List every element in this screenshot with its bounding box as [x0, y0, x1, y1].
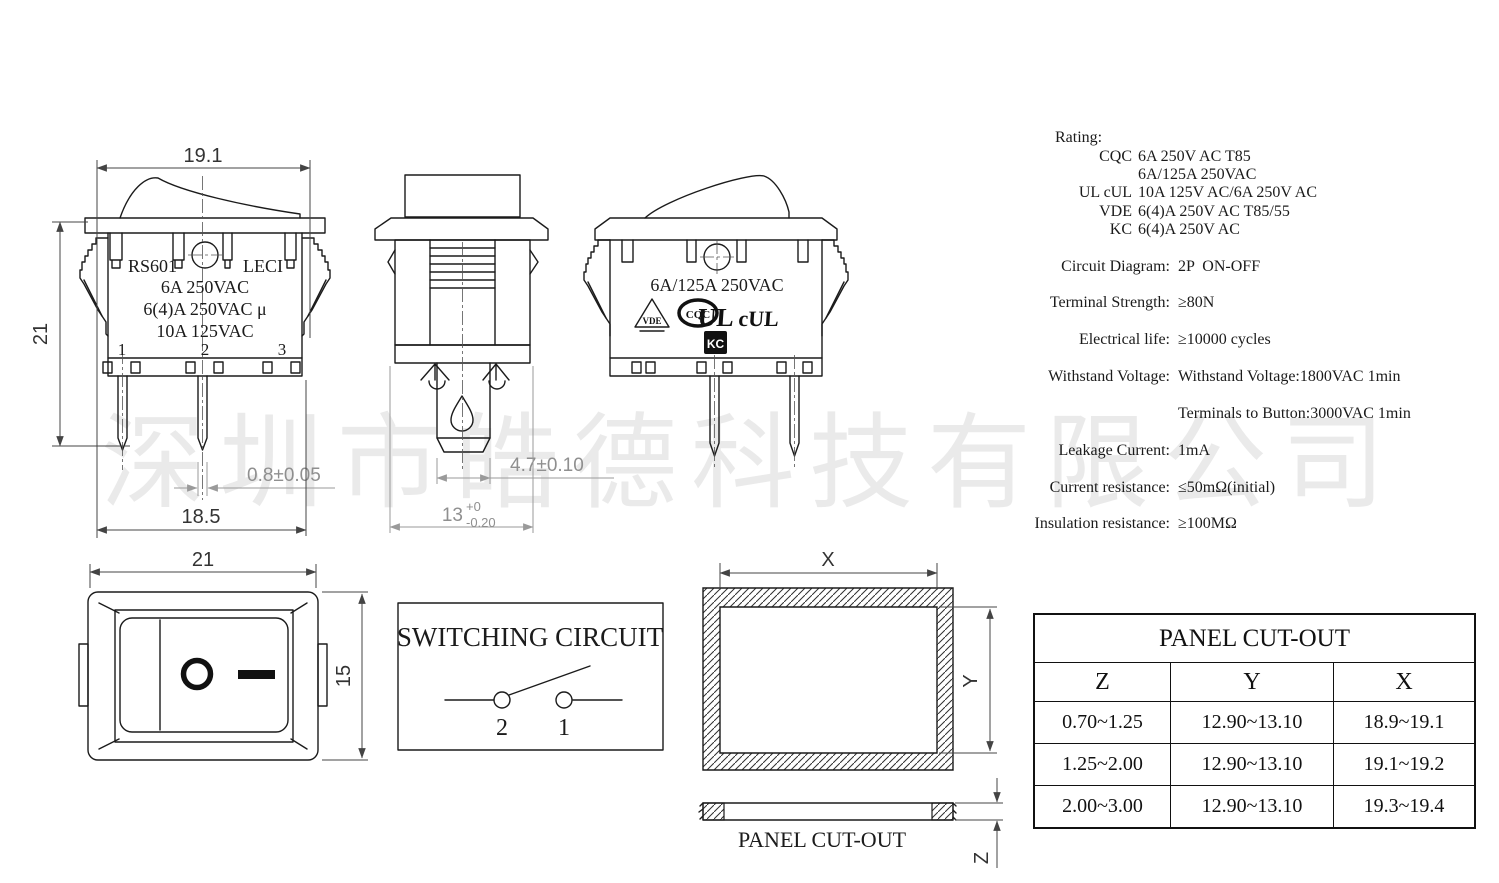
- dim-15-label: 15: [333, 665, 355, 687]
- svg-text:cUL: cUL: [738, 306, 780, 331]
- vde-logo: VDE: [635, 299, 669, 331]
- dim-13-label: 13: [442, 505, 463, 526]
- terminal-2-label: 2: [201, 340, 210, 359]
- spec-row: Leakage Current:1mA: [1020, 442, 1210, 460]
- cell-x: 19.3~19.4: [1334, 786, 1476, 829]
- dim-front-height: 21: [30, 222, 130, 446]
- spec-row: Terminal Strength:≥80N: [1020, 294, 1214, 312]
- spec-row: Withstand Voltage:Withstand Voltage:1800…: [1020, 368, 1400, 386]
- cell-y: 12.90~13.10: [1171, 702, 1334, 744]
- spec-label: Circuit Diagram:: [1020, 258, 1170, 276]
- rating-value: 6A 250V AC T85: [1138, 148, 1251, 165]
- spec-row: Circuit Diagram:2P ON-OFF: [1020, 258, 1260, 276]
- spec-value: 2P ON-OFF: [1178, 258, 1260, 275]
- top-view-drawing: [79, 592, 327, 760]
- table-row: 1.25~2.00 12.90~13.10 19.1~19.2: [1034, 744, 1475, 786]
- rating-value: 10A 125V AC/6A 250V AC: [1138, 184, 1317, 201]
- spec-row: Current resistance:≤50mΩ(initial): [1020, 479, 1275, 497]
- spec-label: Withstand Voltage:: [1020, 368, 1170, 386]
- spec-label: Current resistance:: [1020, 479, 1170, 497]
- model-marking: RS601: [128, 256, 177, 276]
- rating-marking-3: 10A 125VAC: [156, 321, 253, 341]
- on-symbol: [238, 670, 275, 679]
- rating-agency: VDE: [1020, 203, 1132, 221]
- dim-top-view-width: 21: [90, 549, 316, 588]
- terminal-3-label: 3: [278, 340, 287, 359]
- spec-row: Terminals to Button:3000VAC 1min: [1020, 405, 1411, 423]
- rating-row: KC6(4)A 250V AC: [1020, 221, 1240, 239]
- cul-logo: cUL: [738, 306, 780, 331]
- switching-circuit-box: SWITCHING CIRCUIT 2 1: [397, 603, 664, 750]
- rating-value: 6A/125A 250VAC: [1138, 166, 1256, 183]
- cell-x: 18.9~19.1: [1334, 702, 1476, 744]
- circuit-label-2: 2: [496, 715, 508, 741]
- rating-agency: UL cUL: [1020, 184, 1132, 202]
- rating-marking-2: 6(4)A 250VAC μ: [143, 299, 266, 320]
- dim-top-view-height: 15: [322, 592, 368, 760]
- panel-cutout-hole: [703, 588, 953, 770]
- panel-cutout-drawing: X Y Z PANEL CUT-OUT: [699, 549, 1003, 868]
- back-rating-marking: 6A/125A 250VAC: [650, 275, 783, 295]
- panel-section: [703, 803, 953, 820]
- dim-13-tol-lower: -0.20: [466, 515, 496, 530]
- side-view-drawing: [375, 175, 548, 472]
- cell-y: 12.90~13.10: [1171, 744, 1334, 786]
- dim-z-label: Z: [971, 852, 993, 864]
- table-header-row: Z Y X: [1034, 663, 1475, 702]
- dim-19-1-label: 19.1: [184, 145, 223, 167]
- panel-cutout-caption: PANEL CUT-OUT: [738, 827, 907, 852]
- spec-label: Electrical life:: [1020, 331, 1170, 349]
- rating-marking-1: 6A 250VAC: [161, 277, 249, 297]
- kc-logo: KC: [704, 331, 727, 354]
- switch-lever: [509, 666, 590, 695]
- column-header-z: Z: [1034, 663, 1171, 702]
- spec-row: Electrical life:≥10000 cycles: [1020, 331, 1271, 349]
- rating-value: 6(4)A 250V AC: [1138, 221, 1240, 238]
- table-title-row: PANEL CUT-OUT: [1034, 614, 1475, 663]
- circuit-terminal-1: [556, 692, 572, 708]
- dim-21-label: 21: [30, 323, 52, 345]
- circuit-terminal-2: [494, 692, 510, 708]
- spec-value: ≥100MΩ: [1178, 515, 1237, 532]
- table-row: 0.70~1.25 12.90~13.10 18.9~19.1: [1034, 702, 1475, 744]
- circuit-label-1: 1: [558, 715, 570, 741]
- dim-terminal-width: 4.7±0.10: [437, 455, 614, 484]
- dim-body-depth: 13 +0 -0.20: [390, 366, 533, 533]
- spec-value: Withstand Voltage:1800VAC 1min: [1178, 368, 1400, 385]
- rating-agency: CQC: [1020, 148, 1132, 166]
- dim-cutout-z: Z: [955, 778, 1003, 868]
- svg-text:UL: UL: [697, 303, 735, 332]
- cell-z: 1.25~2.00: [1034, 744, 1171, 786]
- brand-marking: LECI: [243, 256, 283, 276]
- dim-4-7-label: 4.7±0.10: [510, 455, 584, 476]
- svg-text:VDE: VDE: [642, 316, 661, 326]
- dim-21-top-label: 21: [192, 549, 214, 571]
- cell-z: 2.00~3.00: [1034, 786, 1171, 829]
- spec-label: Insulation resistance:: [1020, 515, 1170, 533]
- switching-circuit-title: SWITCHING CIRCUIT: [397, 622, 664, 652]
- cell-z: 0.70~1.25: [1034, 702, 1171, 744]
- svg-text:KC: KC: [707, 337, 725, 351]
- spec-value: Terminals to Button:3000VAC 1min: [1178, 405, 1411, 422]
- terminal-hole: [451, 396, 473, 431]
- spec-label: Terminal Strength:: [1020, 294, 1170, 312]
- spec-value: 1mA: [1178, 442, 1210, 459]
- spec-label: Leakage Current:: [1020, 442, 1170, 460]
- spec-row: Insulation resistance:≥100MΩ: [1020, 515, 1237, 533]
- rating-row: 6A/125A 250VAC: [1020, 166, 1256, 184]
- dim-x-label: X: [821, 549, 834, 571]
- table-title: PANEL CUT-OUT: [1034, 614, 1475, 663]
- column-header-x: X: [1334, 663, 1476, 702]
- dim-y-label: Y: [960, 674, 982, 687]
- off-symbol: [184, 661, 211, 688]
- spec-value: ≥10000 cycles: [1178, 331, 1271, 348]
- rating-value: 6(4)A 250V AC T85/55: [1138, 203, 1290, 220]
- dim-pin-width: 0.8±0.05: [174, 462, 335, 496]
- rating-row: CQC6A 250V AC T85: [1020, 148, 1251, 166]
- cell-x: 19.1~19.2: [1334, 744, 1476, 786]
- rating-row: VDE6(4)A 250V AC T85/55: [1020, 203, 1290, 221]
- dim-0-8-label: 0.8±0.05: [247, 465, 321, 486]
- cell-y: 12.90~13.10: [1171, 786, 1334, 829]
- dim-18-5-label: 18.5: [182, 506, 221, 528]
- dim-13-tol-upper: +0: [466, 499, 481, 514]
- table-row: 2.00~3.00 12.90~13.10 19.3~19.4: [1034, 786, 1475, 829]
- rating-agency: KC: [1020, 221, 1132, 239]
- spec-value: ≤50mΩ(initial): [1178, 479, 1275, 496]
- rating-heading: Rating:: [1055, 129, 1102, 147]
- panel-cutout-table: PANEL CUT-OUT Z Y X 0.70~1.25 12.90~13.1…: [1033, 613, 1476, 829]
- rating-row: UL cUL10A 125V AC/6A 250V AC: [1020, 184, 1317, 202]
- column-header-y: Y: [1171, 663, 1334, 702]
- back-view-drawing: 6A/125A 250VAC VDE CQC UL cUL KC: [584, 176, 848, 470]
- spec-value: ≥80N: [1178, 294, 1214, 311]
- dim-front-bottom-width: 18.5: [97, 380, 306, 536]
- dim-cutout-x: X: [720, 549, 937, 590]
- ul-logo: UL: [697, 303, 735, 332]
- drawing-sheet: 深圳市皓德科技有限公司: [0, 0, 1499, 883]
- front-view-drawing: RS601 LECI 6A 250VAC 6(4)A 250VAC μ 10A …: [80, 176, 330, 500]
- terminal-1-label: 1: [118, 340, 127, 359]
